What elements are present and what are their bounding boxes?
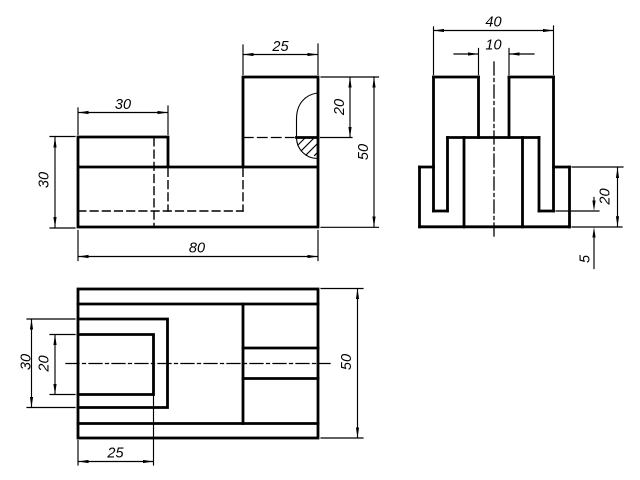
svg-text:50: 50 [356,144,372,160]
svg-text:30: 30 [37,172,53,188]
svg-text:20: 20 [598,188,614,205]
svg-text:20: 20 [37,355,53,372]
svg-text:80: 80 [189,241,205,257]
svg-text:25: 25 [271,39,289,55]
svg-text:10: 10 [485,38,501,54]
svg-text:5: 5 [578,254,594,263]
svg-text:25: 25 [106,446,124,462]
svg-text:50: 50 [339,354,355,370]
svg-text:30: 30 [19,354,35,370]
svg-text:30: 30 [115,97,131,113]
svg-text:40: 40 [485,15,501,31]
svg-text:20: 20 [332,99,348,116]
